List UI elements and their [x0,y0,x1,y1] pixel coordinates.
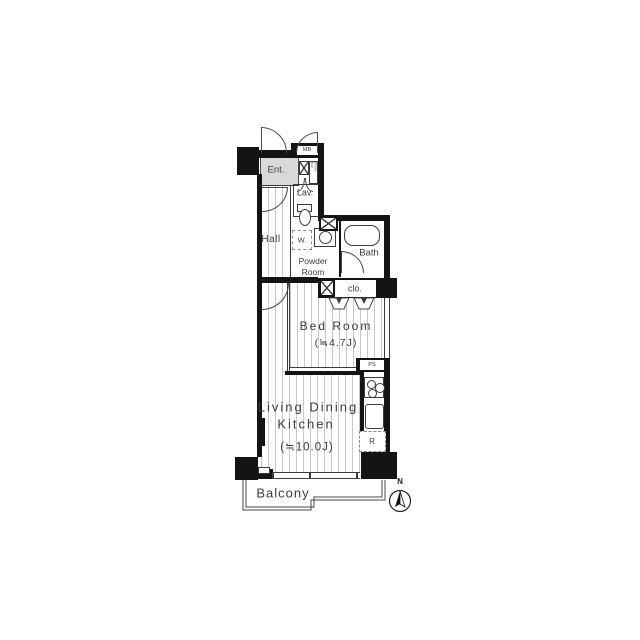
burner-icon [368,389,377,398]
bedroom-size-label: (≒4.7J) [315,338,358,349]
entrance-door-arc [261,127,287,153]
entrance-label: Ent. [268,165,285,175]
shoes-box-label: Shoes Box [310,162,317,174]
stove-icon [364,377,384,398]
pillar-closet-right [384,278,397,298]
ldk-size-label: (≒10.0J) [280,442,333,454]
bedroom-bottom-wall [285,371,364,375]
pipe-space-label: PS [368,362,375,368]
bedroom-label: Bed Room [300,320,373,332]
closet-band [287,277,318,283]
duct-shaft-icon [319,216,338,231]
hanger-icon [328,297,350,310]
ldk-label-line1: Living Dining [258,401,358,414]
hanger-icon [353,297,375,310]
lavatory-left-line [293,184,294,217]
hall-powder-divider [290,186,291,277]
left-wall-pillar-bump [257,418,265,446]
lavatory-right-wall [318,150,324,221]
shoes-cabinet-icon [299,161,309,175]
washbasin-icon [319,231,332,244]
bathtub-icon [344,225,380,246]
hall-label: Hall [261,235,280,245]
washing-machine-label: W. [298,236,307,244]
sink-icon [365,404,384,429]
bath-label: Bath [359,248,379,258]
ldk-label-line2: Kitchen [277,418,334,431]
compass-north-label: N [397,477,403,486]
lavatory-label: Lav. [297,189,313,198]
powder-room-label-line2: Room [302,268,325,277]
compass: N [386,474,415,516]
balcony-label: Balcony [256,487,309,500]
closet-label: clo. [348,285,362,294]
refrigerator-label: R [369,438,375,446]
powder-room-label-line1: Powder [299,257,328,266]
bedroom-partition [287,283,290,371]
bottom-wall-notch [258,467,270,474]
toilet-bowl-icon [299,209,311,226]
left-outer-wall [257,174,262,457]
bedroom-window [384,298,390,358]
closet-shaft-icon [321,281,333,295]
entrance-door-arc [296,132,318,153]
floor-plan: MB PS Shoes Box W. [0,0,640,640]
